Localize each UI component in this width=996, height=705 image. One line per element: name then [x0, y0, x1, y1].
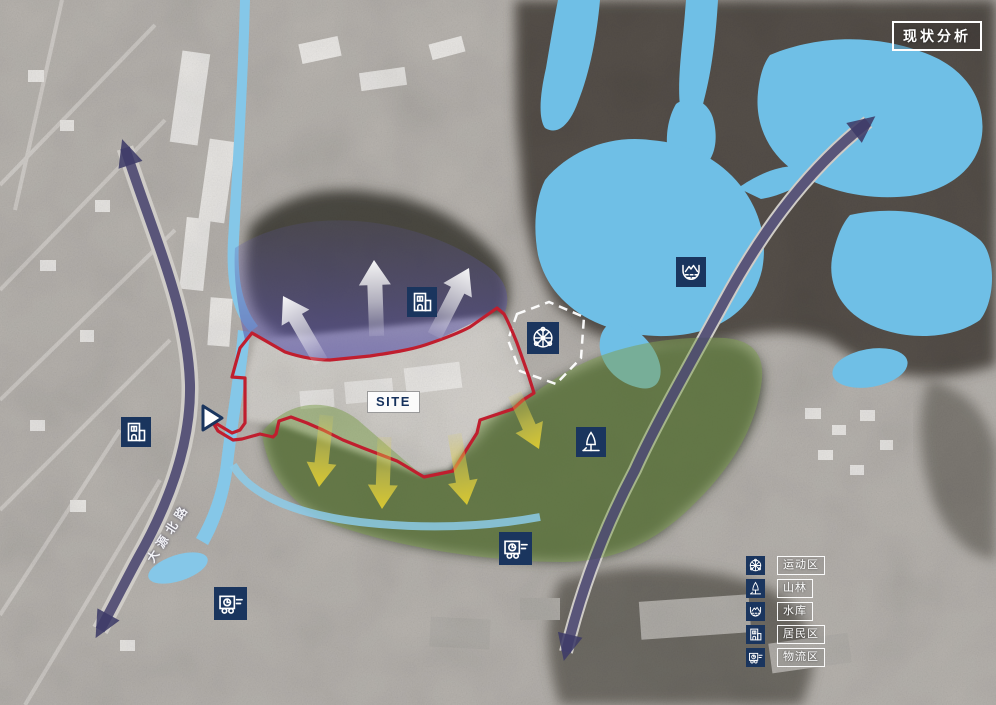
tree-icon — [576, 427, 606, 457]
reservoir-icon — [676, 257, 706, 287]
map-canvas — [0, 0, 996, 705]
ferris-wheel-icon — [527, 322, 559, 354]
building-icon — [121, 417, 151, 447]
truck-icon — [214, 587, 247, 620]
building-icon — [407, 287, 437, 317]
site-analysis-map: 现状分析 SITE 大源北路 运动区 山林 水库 居民区 物流区 — [0, 0, 996, 705]
truck-icon — [499, 532, 532, 565]
